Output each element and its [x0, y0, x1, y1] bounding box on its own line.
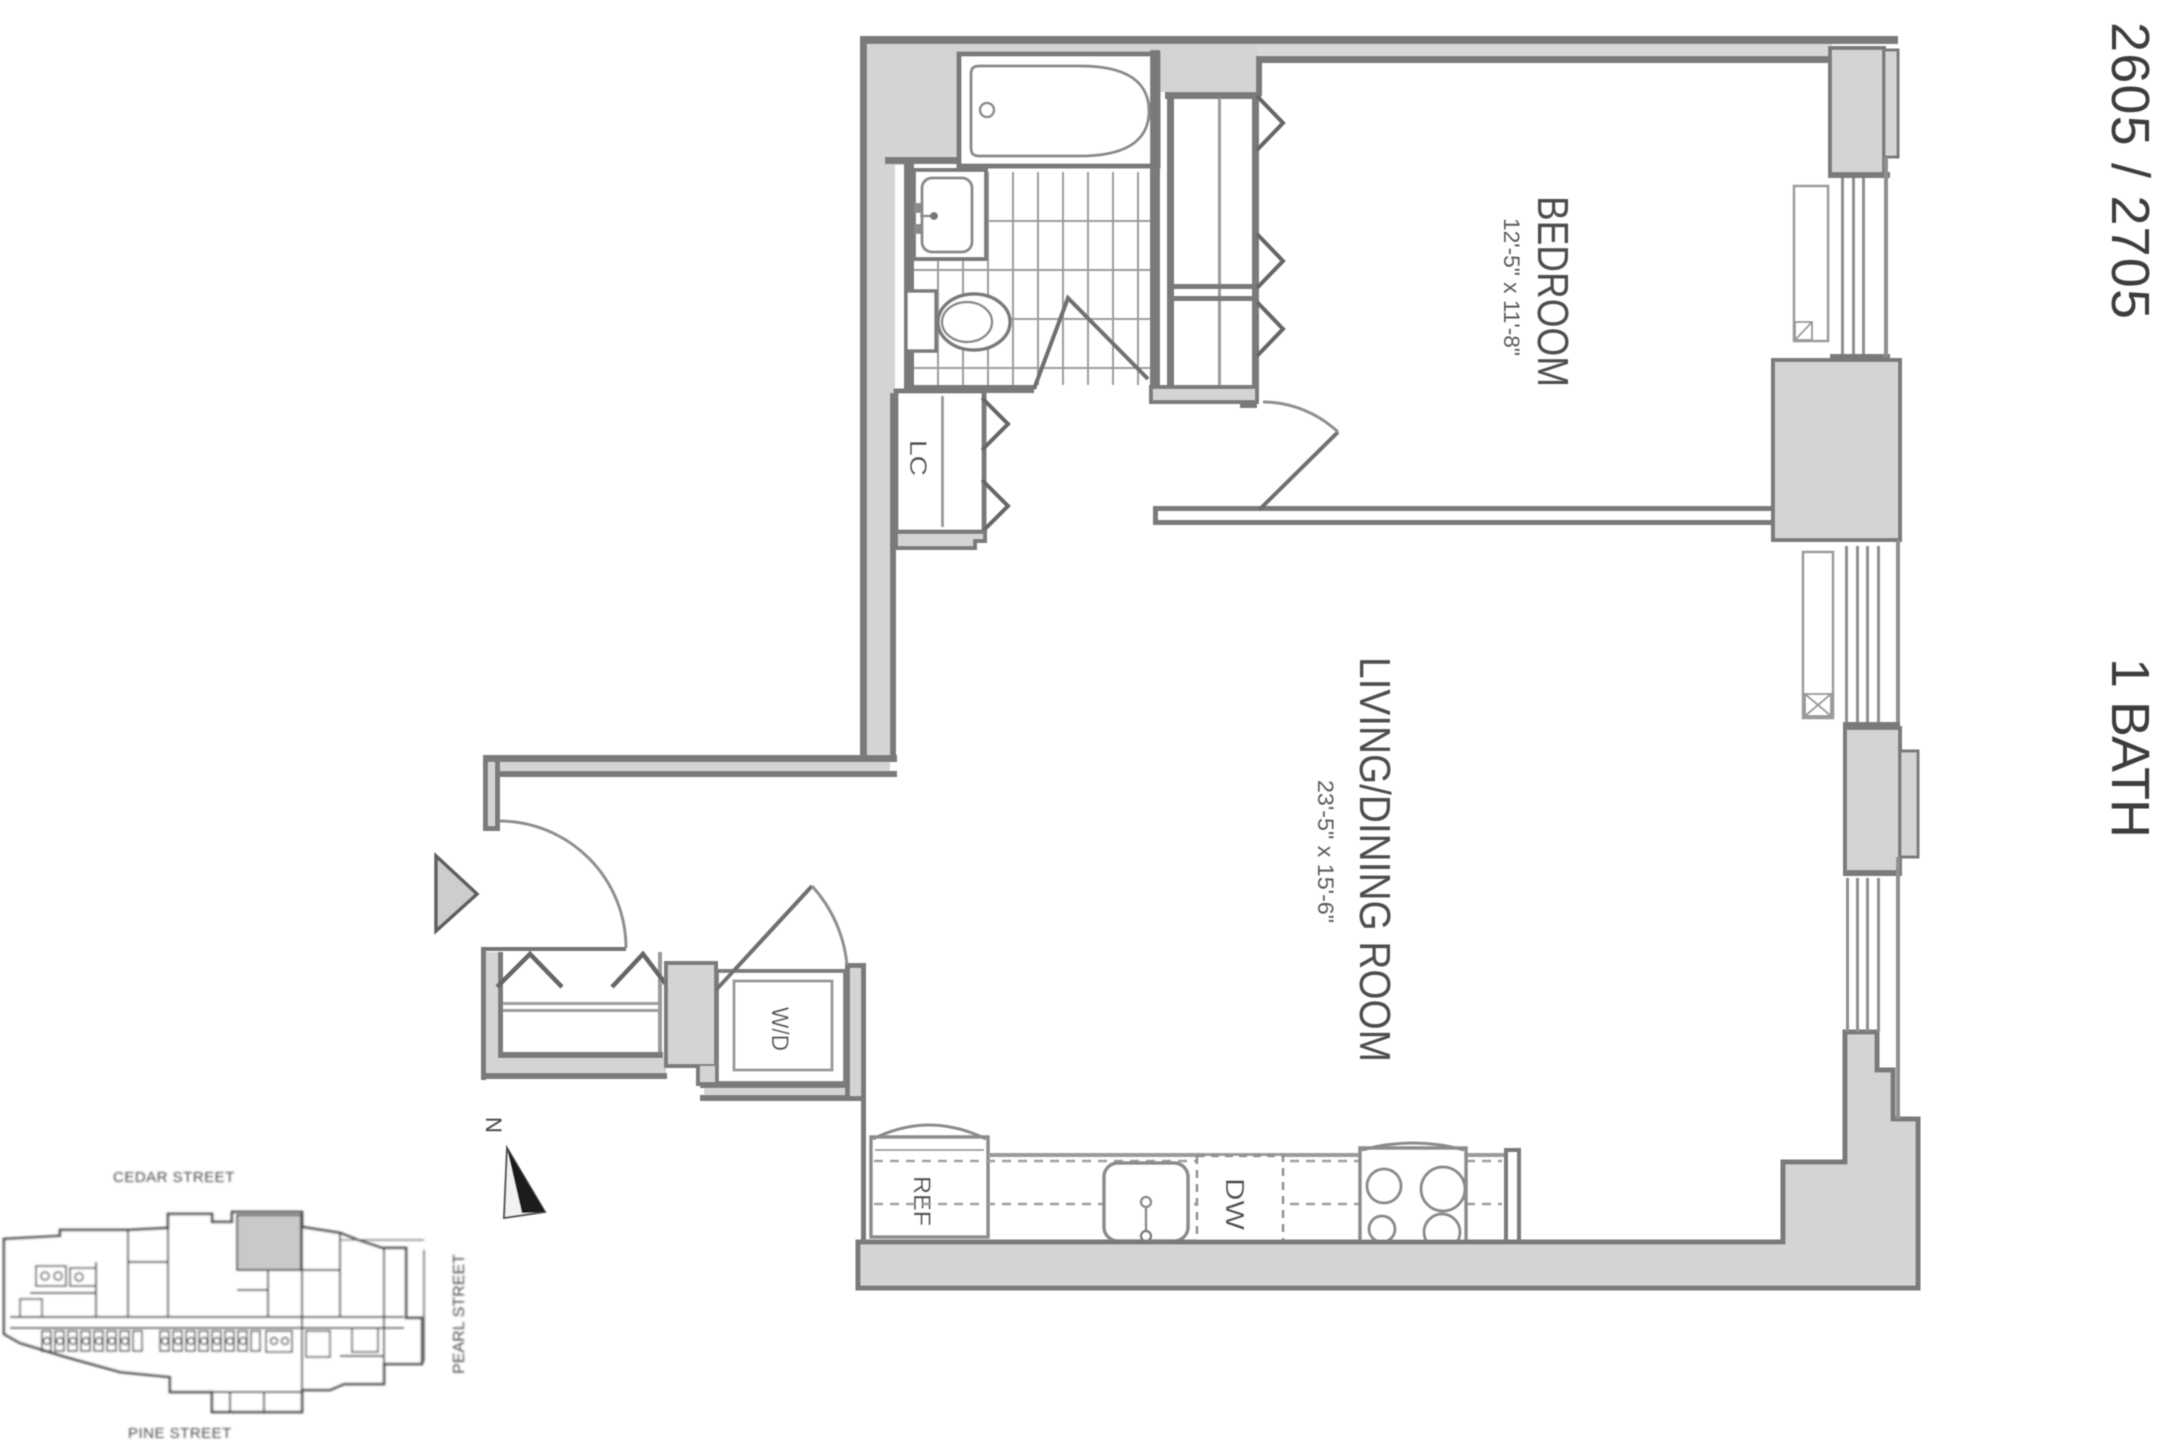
svg-text:PEARL STREET: PEARL STREET	[451, 1254, 468, 1374]
svg-text:DW: DW	[1220, 1178, 1250, 1231]
svg-text:CEDAR STREET: CEDAR STREET	[113, 1169, 235, 1186]
svg-text:12'-5" x 11'-8": 12'-5" x 11'-8"	[1499, 218, 1524, 356]
svg-text:2605 / 2705: 2605 / 2705	[2100, 22, 2160, 319]
svg-text:PINE STREET: PINE STREET	[128, 1425, 232, 1440]
svg-text:N: N	[481, 1117, 506, 1133]
svg-text:LIVING/DINING ROOM: LIVING/DINING ROOM	[1350, 657, 1399, 1062]
svg-text:LC: LC	[904, 440, 931, 476]
svg-text:23'-5" x 15'-6": 23'-5" x 15'-6"	[1313, 780, 1338, 923]
svg-text:REF: REF	[908, 1176, 935, 1226]
svg-text:W/D: W/D	[766, 1007, 793, 1051]
svg-text:1 BATH: 1 BATH	[2100, 658, 2160, 838]
svg-text:BEDROOM: BEDROOM	[1528, 196, 1577, 387]
